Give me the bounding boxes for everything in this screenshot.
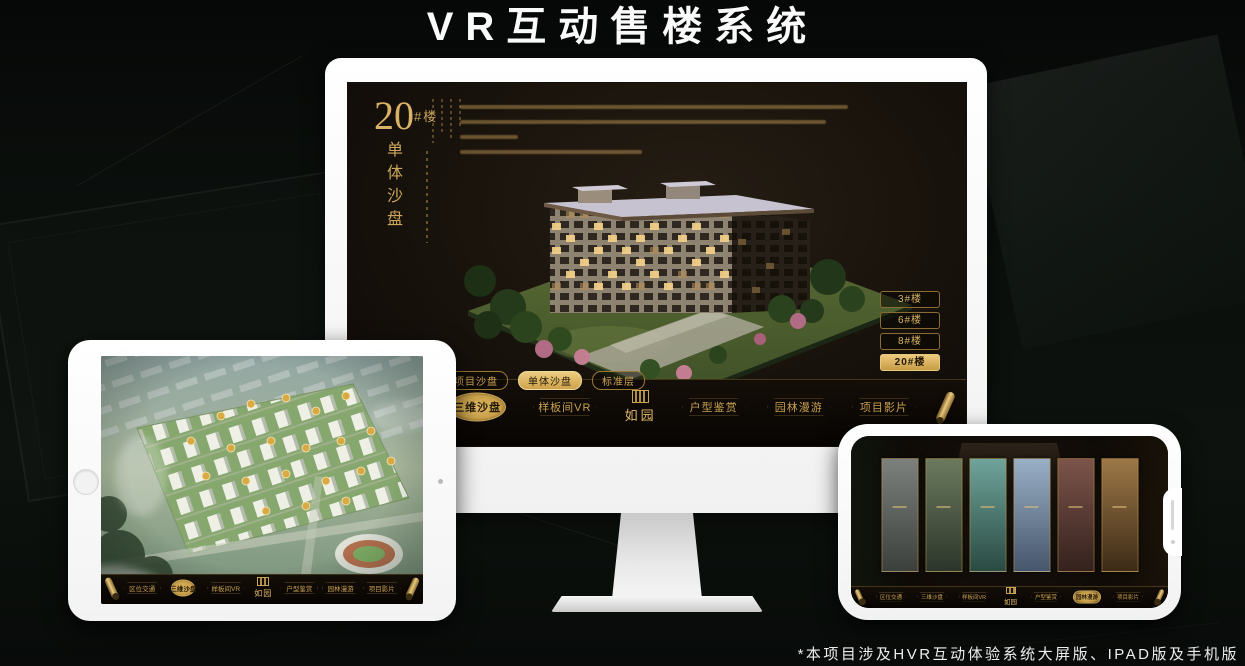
phone-navbar: 区位交通 三维沙盘 样板间VR 如园 户型鉴赏 园林漫游 项目影片 — [851, 586, 1168, 608]
scene-gallery — [881, 458, 1138, 572]
building-side-face — [732, 209, 810, 313]
nav-item-project-film[interactable]: 项目影片 — [1116, 592, 1140, 602]
brand-logo: 如园 — [625, 390, 657, 424]
gallery-panel-3[interactable] — [969, 458, 1006, 572]
floor-button-20[interactable]: 20#楼 — [880, 354, 940, 371]
floor-button-3[interactable]: 3#楼 — [880, 291, 940, 308]
nav-item-project-film[interactable]: 项目影片 — [856, 394, 912, 420]
nav-item-location-traffic[interactable]: 区位交通 — [879, 592, 903, 602]
sandtable-subtabs: 项目沙盘 单体沙盘 标准层 — [444, 371, 645, 390]
building-heading: 20#楼 单体沙盘 — [374, 95, 438, 251]
building-model — [460, 159, 940, 404]
gallery-panel-2[interactable] — [925, 458, 962, 572]
brand-logo-text: 如园 — [254, 588, 272, 599]
gallery-panel-6[interactable] — [1101, 458, 1138, 572]
gallery-panel-1[interactable] — [881, 458, 918, 572]
brand-seal-icon — [1006, 587, 1016, 594]
background-map-line — [77, 55, 303, 186]
nav-item-3d-sandtable[interactable]: 三维沙盘 — [169, 581, 197, 595]
nav-item-showroom-vr[interactable]: 样板间VR — [961, 592, 987, 602]
brand-logo: 如园 — [254, 577, 272, 599]
gallery-panel-4[interactable] — [1013, 458, 1050, 572]
nav-item-floorplan[interactable]: 户型鉴赏 — [285, 581, 313, 595]
scroll-menu-icon[interactable] — [935, 391, 956, 424]
nav-item-garden-roam[interactable]: 园林漫游 — [771, 394, 827, 420]
nav-item-garden-roam[interactable]: 园林漫游 — [1075, 592, 1099, 602]
background-photo — [967, 34, 1245, 349]
floor-select-group: 3#楼 6#楼 8#楼 20#楼 — [880, 291, 940, 371]
subtab-single-sandtable[interactable]: 单体沙盘 — [518, 371, 582, 390]
nav-item-showroom-vr[interactable]: 样板间VR — [211, 581, 242, 595]
page-title: VR互动售楼系统 — [0, 0, 1245, 54]
nav-item-floorplan[interactable]: 户型鉴赏 — [686, 394, 742, 420]
brand-logo-text: 如园 — [625, 405, 657, 424]
floor-button-6[interactable]: 6#楼 — [880, 312, 940, 329]
vertical-caption-marks — [432, 99, 461, 143]
brand-seal-icon — [632, 390, 649, 403]
phone-camera — [1171, 540, 1175, 544]
subtab-standard-floor[interactable]: 标准层 — [592, 371, 645, 390]
nav-item-garden-roam[interactable]: 园林漫游 — [327, 581, 355, 595]
nav-item-showroom-vr[interactable]: 样板间VR — [534, 394, 595, 420]
tablet-navbar: 区位交通 三维沙盘 样板间VR 如园 户型鉴赏 园林漫游 项目影片 — [101, 574, 423, 604]
scroll-menu-icon-left[interactable] — [104, 577, 119, 600]
phone-screen: 区位交通 三维沙盘 样板间VR 如园 户型鉴赏 园林漫游 项目影片 — [851, 436, 1168, 608]
brand-logo-text: 如园 — [1004, 596, 1017, 606]
nav-item-3d-sandtable[interactable]: 三维沙盘 — [449, 394, 505, 420]
tablet-home-button[interactable] — [73, 469, 99, 495]
aerial-masterplan — [101, 356, 423, 604]
phone-speaker — [1171, 500, 1174, 530]
subtitle-side-script — [426, 151, 428, 243]
tablet-camera — [438, 479, 443, 484]
brand-seal-icon — [257, 577, 269, 586]
tablet-screen: 项目沙盘 单体沙盘 标准层 区位交通 三维沙盘 样板间VR 如园 户型鉴赏 园林… — [101, 356, 423, 604]
description-text-blurred — [460, 105, 848, 165]
nav-item-3d-sandtable[interactable]: 三维沙盘 — [920, 592, 944, 602]
phone-device: 区位交通 三维沙盘 样板间VR 如园 户型鉴赏 园林漫游 项目影片 — [838, 424, 1181, 620]
building-number: 20 — [374, 95, 414, 137]
gallery-panel-5[interactable] — [1057, 458, 1094, 572]
nav-item-location-traffic[interactable]: 区位交通 — [128, 581, 156, 595]
brand-logo: 如园 — [1004, 587, 1017, 606]
footnote-text: *本项目涉及HVR互动体验系统大屏版、IPAD版及手机版 — [798, 643, 1239, 664]
monitor-stand — [612, 513, 702, 599]
tablet-device: 项目沙盘 单体沙盘 标准层 区位交通 三维沙盘 样板间VR 如园 户型鉴赏 园林… — [68, 340, 456, 621]
floor-button-8[interactable]: 8#楼 — [880, 333, 940, 350]
promo-stage: VR互动售楼系统 20#楼 单体沙盘 — [0, 0, 1245, 666]
monitor-foot — [551, 596, 763, 612]
phone-notch — [1163, 488, 1182, 556]
scroll-menu-icon-left[interactable] — [854, 589, 865, 605]
nav-item-floorplan[interactable]: 户型鉴赏 — [1034, 592, 1058, 602]
scroll-menu-icon-right[interactable] — [405, 577, 420, 600]
nav-item-project-film[interactable]: 项目影片 — [368, 581, 396, 595]
building-subtitle: 单体沙盘 — [380, 141, 404, 251]
scroll-menu-icon-right[interactable] — [1154, 589, 1165, 605]
